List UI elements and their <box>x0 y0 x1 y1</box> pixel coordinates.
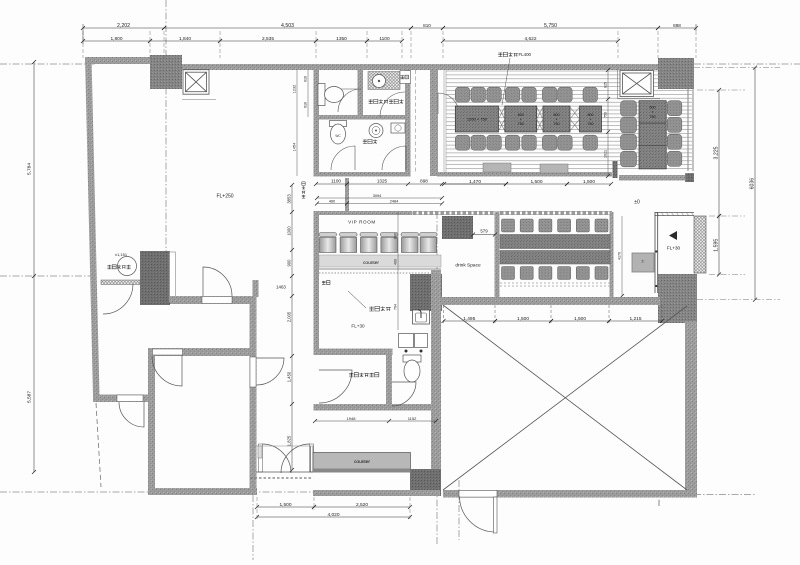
svg-text:×: × <box>555 118 557 122</box>
svg-text:900: 900 <box>287 259 292 267</box>
svg-text:625: 625 <box>604 82 608 88</box>
svg-text:1454: 1454 <box>293 143 297 151</box>
svg-text:WC: WC <box>335 134 341 138</box>
svg-text:1232: 1232 <box>293 85 297 93</box>
svg-text:×: × <box>520 118 522 122</box>
svg-text:1200 × 750: 1200 × 750 <box>467 117 488 122</box>
svg-text:1,825: 1,825 <box>287 435 292 446</box>
svg-text:2,535: 2,535 <box>262 36 274 42</box>
svg-text:1000: 1000 <box>287 226 292 236</box>
svg-text:×: × <box>589 118 591 122</box>
svg-text:FL+30: FL+30 <box>667 246 681 251</box>
svg-text:counter: counter <box>354 459 370 465</box>
svg-text:1,500: 1,500 <box>574 316 586 322</box>
svg-text:600: 600 <box>650 106 656 110</box>
svg-text:5,750: 5,750 <box>544 23 557 29</box>
svg-text:4,622: 4,622 <box>524 36 536 42</box>
svg-text:1,450: 1,450 <box>287 371 292 382</box>
svg-text:1350: 1350 <box>336 36 347 42</box>
svg-text:1100: 1100 <box>331 179 341 184</box>
svg-text:1,495: 1,495 <box>463 316 475 322</box>
svg-text:794: 794 <box>394 304 398 310</box>
svg-text:579: 579 <box>480 229 488 234</box>
svg-text:750: 750 <box>650 115 656 119</box>
svg-text:6036: 6036 <box>750 178 756 190</box>
svg-text:1,500: 1,500 <box>583 179 595 185</box>
svg-text:1463: 1463 <box>276 285 286 290</box>
svg-text:1152: 1152 <box>408 416 417 421</box>
svg-text:400: 400 <box>394 259 398 265</box>
svg-text:800: 800 <box>588 113 594 117</box>
svg-text:2,520: 2,520 <box>356 502 368 508</box>
svg-text:460: 460 <box>329 199 335 203</box>
svg-text:4170: 4170 <box>618 252 622 260</box>
svg-text:1948: 1948 <box>347 416 357 421</box>
svg-text:3094: 3094 <box>373 194 381 198</box>
svg-text:3853: 3853 <box>287 194 292 204</box>
svg-text:1325: 1325 <box>377 179 388 184</box>
svg-text:2,005: 2,005 <box>287 311 292 322</box>
svg-text:800: 800 <box>518 113 524 117</box>
svg-text:888: 888 <box>673 23 681 28</box>
svg-text:±1,151: ±1,151 <box>115 252 128 257</box>
svg-text:1,840: 1,840 <box>179 36 191 42</box>
svg-text:898: 898 <box>420 179 428 184</box>
svg-text:1,800: 1,800 <box>110 36 122 42</box>
svg-text:2,202: 2,202 <box>117 23 130 29</box>
svg-text:FL400: FL400 <box>519 52 532 57</box>
svg-text:600: 600 <box>394 233 398 239</box>
svg-text:1,500: 1,500 <box>530 179 542 185</box>
svg-text:750: 750 <box>554 122 560 126</box>
svg-text:1,470: 1,470 <box>469 179 481 185</box>
svg-text:5,587: 5,587 <box>27 391 33 403</box>
svg-text:×: × <box>651 110 653 114</box>
svg-text:2484: 2484 <box>390 199 398 203</box>
svg-text:VIP ROOM: VIP ROOM <box>348 220 376 225</box>
svg-text:1,595: 1,595 <box>714 239 720 252</box>
svg-text:counter: counter <box>363 260 379 266</box>
svg-text:5,784: 5,784 <box>27 163 33 175</box>
svg-text:750: 750 <box>588 122 594 126</box>
svg-text:1100: 1100 <box>379 36 390 42</box>
svg-text:750: 750 <box>518 122 524 126</box>
svg-text:616: 616 <box>304 102 308 108</box>
svg-text:810: 810 <box>423 23 431 28</box>
svg-text:616: 616 <box>304 76 308 82</box>
svg-text:750: 750 <box>604 112 608 118</box>
svg-text:1,500: 1,500 <box>279 502 291 508</box>
svg-text:4,503: 4,503 <box>281 23 294 29</box>
svg-text:800: 800 <box>554 113 560 117</box>
svg-text:3,225: 3,225 <box>714 146 720 159</box>
svg-text:4,020: 4,020 <box>327 512 339 518</box>
svg-text:±0: ±0 <box>634 200 640 206</box>
svg-text:1,500: 1,500 <box>517 316 529 322</box>
svg-text:FL+250: FL+250 <box>216 194 233 200</box>
svg-text:FL+30: FL+30 <box>351 324 365 329</box>
svg-text:1,215: 1,215 <box>629 316 641 322</box>
svg-text:1021: 1021 <box>604 150 608 158</box>
svg-text:drink Space: drink Space <box>455 263 481 269</box>
